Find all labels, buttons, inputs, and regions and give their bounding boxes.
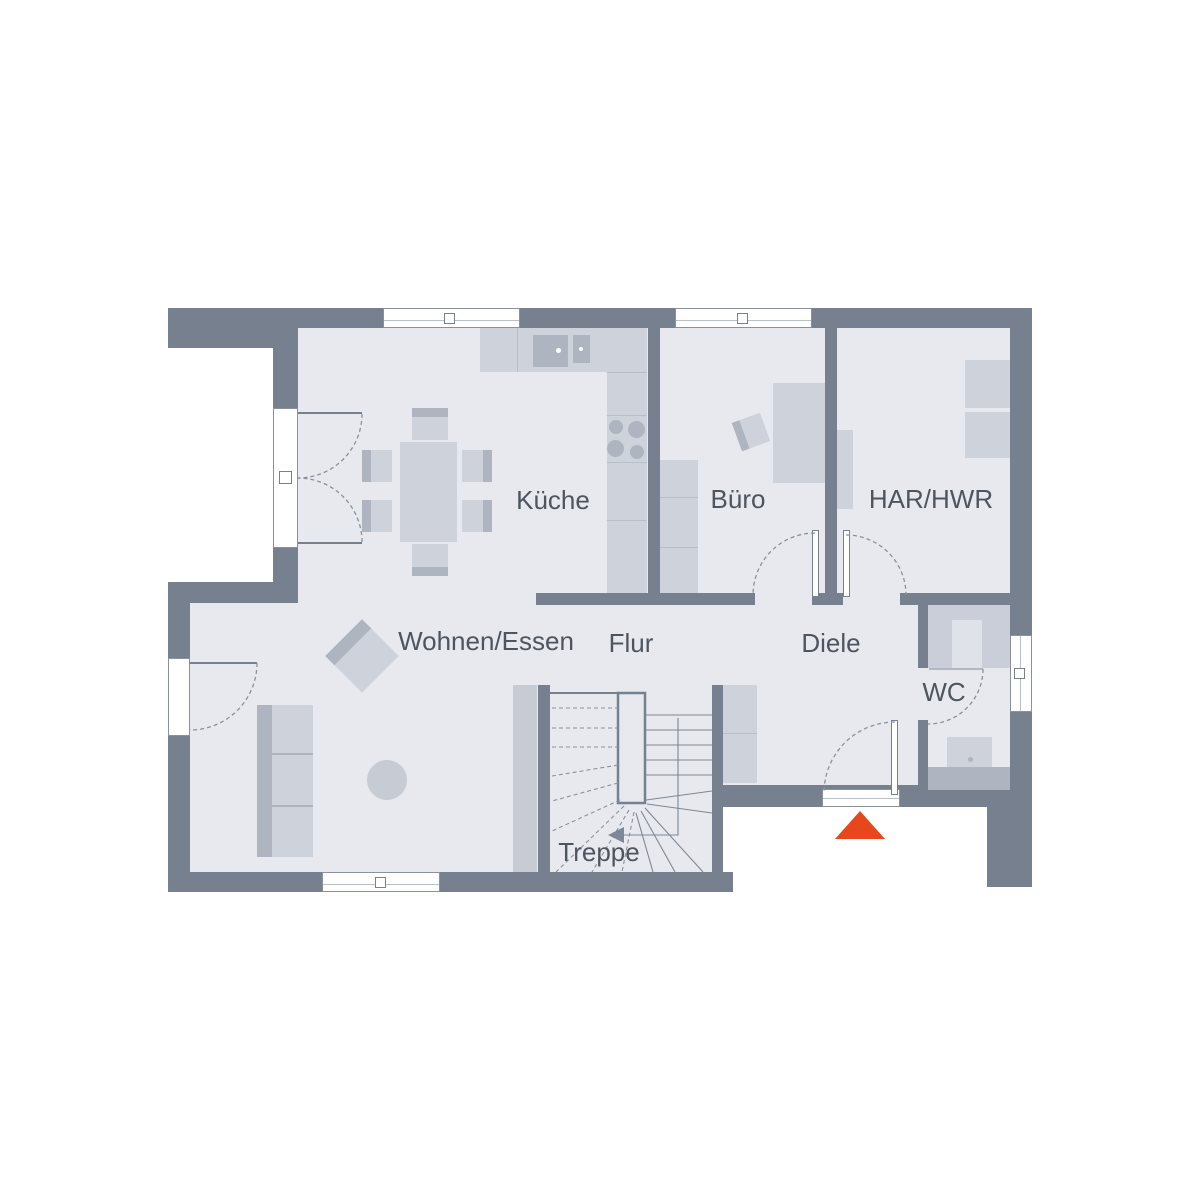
wc-sink [952,620,982,668]
wall-stairs-east [712,685,723,872]
wall-flur-north [536,593,755,605]
wall-wc-west-lower [918,720,928,790]
side-door [168,658,190,736]
entrance-door-threshold [822,789,900,807]
stove-burner [607,440,624,457]
kitchen-counter-column [607,328,647,593]
door-leaf-buero [812,530,819,597]
stove-burner [630,445,644,459]
wall-terrace-upper [273,308,298,408]
wall-left [168,582,190,892]
dining-chair [362,450,392,482]
wall-stairs-west [538,685,550,872]
room-label-diele: Diele [801,629,860,659]
desk [773,383,825,483]
door-leaf-entrance [891,720,898,795]
wc-toilet [947,737,992,768]
window [1010,635,1032,712]
entrance-recess [723,807,987,892]
dining-chair [362,500,392,532]
door-leaf-har [843,530,850,597]
washer [965,360,1010,408]
hall-cabinet [723,685,757,783]
dining-chair [462,450,492,482]
wall-bottom [168,872,733,892]
utility-shelf [837,430,853,509]
sideboard [513,685,537,872]
room-label-har-hwr: HAR/HWR [869,485,993,515]
kitchen-counter-divider [517,328,518,372]
dining-chair [412,408,448,440]
coffee-table-round [367,760,407,800]
room-label-buero: Büro [711,485,766,515]
sofa [257,705,313,857]
room-label-treppe: Treppe [558,838,639,868]
kitchen-counter-divider [607,372,647,373]
room-label-wc: WC [922,678,965,708]
dining-chair [412,544,448,576]
dryer [965,412,1010,458]
kitchen-counter-divider [607,462,647,463]
kitchen-sink-drain [556,348,561,353]
wall-wc-south [928,767,1010,790]
window [383,308,520,328]
wall-buero-har [825,328,837,605]
terrace-recess [168,348,273,582]
kitchen-counter-divider [607,415,647,416]
window [322,872,440,892]
dining-table [400,442,457,542]
wall-har-south [900,593,1010,605]
stove-burner [628,421,645,438]
office-cabinet [660,460,698,593]
floor-plan: Küche Büro HAR/HWR Wohnen/Essen Flur Die… [0,0,1200,1200]
kitchen-appliance-knob [579,347,583,351]
wall-top-left-block [168,308,285,348]
stove-burner [609,420,623,434]
dining-chair [462,500,492,532]
kitchen-counter-divider [607,520,647,521]
wall-bottom-right-block [987,790,1032,887]
wall-wc-west-upper [918,605,928,668]
room-label-flur: Flur [609,629,654,659]
kitchen-sink [533,335,568,367]
wall-kueche-buero [648,328,660,605]
room-label-kueche: Küche [516,486,590,516]
room-label-wohnen-essen: Wohnen/Essen [398,627,574,657]
window [675,308,812,328]
terrace-french-door [273,408,298,548]
